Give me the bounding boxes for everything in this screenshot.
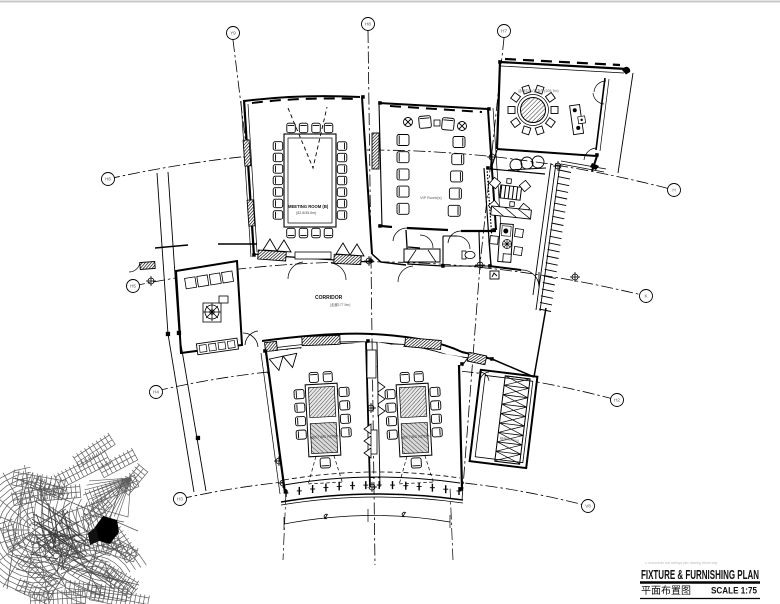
svg-text:活动中心/宴会厅(205.7m): 活动中心/宴会厅(205.7m) [518, 88, 559, 93]
svg-text:(走廊177.9m): (走廊177.9m) [330, 302, 350, 307]
svg-text:CORRIDOR: CORRIDOR [315, 295, 343, 301]
svg-text:c: documents and settings plan: c: documents and settings plan drawing f… [645, 561, 718, 565]
svg-text:H6: H6 [105, 177, 111, 182]
svg-text:H5: H5 [130, 284, 136, 289]
svg-text:VIP Room(s): VIP Room(s) [420, 196, 442, 200]
svg-text:H7: H7 [501, 29, 507, 34]
svg-text:H4: H4 [153, 390, 159, 395]
svg-text:Y9: Y9 [230, 31, 236, 36]
svg-text:H2: H2 [614, 398, 620, 403]
svg-text:(52.6/35.0m): (52.6/35.0m) [296, 211, 316, 215]
svg-text:SCALE 1:75: SCALE 1:75 [711, 586, 757, 596]
svg-text:H3: H3 [177, 497, 183, 502]
svg-text:平面布置图: 平面布置图 [641, 585, 691, 597]
svg-text:H8: H8 [365, 22, 371, 27]
svg-text:FIXTURE & FURNISHING PLAN: FIXTURE & FURNISHING PLAN [641, 568, 759, 582]
svg-text:MEETING ROOM (B): MEETING ROOM (B) [288, 204, 329, 209]
svg-text:H: H [672, 188, 675, 193]
svg-text:V8: V8 [585, 504, 591, 509]
